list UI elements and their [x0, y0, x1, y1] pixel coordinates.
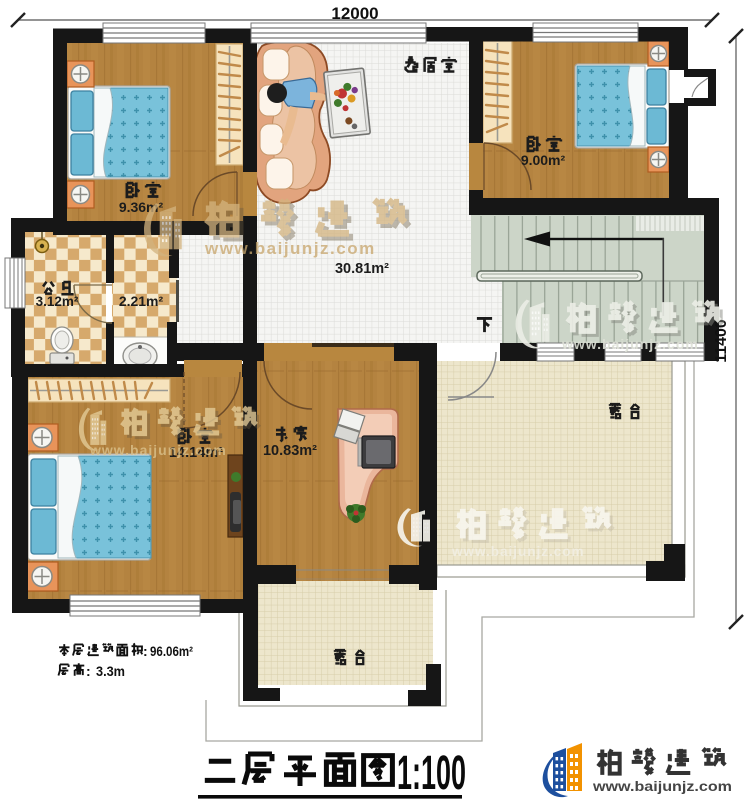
svg-text:12000: 12000: [331, 4, 378, 23]
svg-text:9.00m²: 9.00m²: [521, 152, 566, 168]
svg-text:www.baijunjz.com: www.baijunjz.com: [592, 779, 732, 794]
svg-text:1:100: 1:100: [397, 747, 466, 800]
svg-text:96.06m²: 96.06m²: [150, 643, 193, 659]
svg-text::: :: [86, 663, 91, 679]
svg-text:www.baijunjz.com: www.baijunjz.com: [204, 239, 376, 258]
svg-text:30.81m²: 30.81m²: [335, 261, 389, 277]
svg-text::: :: [143, 643, 148, 659]
svg-text:3.12m²: 3.12m²: [36, 294, 79, 309]
svg-text:2.21m²: 2.21m²: [119, 293, 164, 309]
svg-text:3.3m: 3.3m: [96, 663, 125, 679]
svg-text:www.baijunjz.com: www.baijunjz.com: [451, 544, 585, 559]
svg-text:10.83m²: 10.83m²: [263, 443, 317, 459]
svg-text:www.baijunjz.com: www.baijunjz.com: [561, 336, 699, 352]
svg-text:www.baijunjz.com: www.baijunjz.com: [89, 442, 227, 458]
svg-text:11400: 11400: [713, 319, 730, 363]
